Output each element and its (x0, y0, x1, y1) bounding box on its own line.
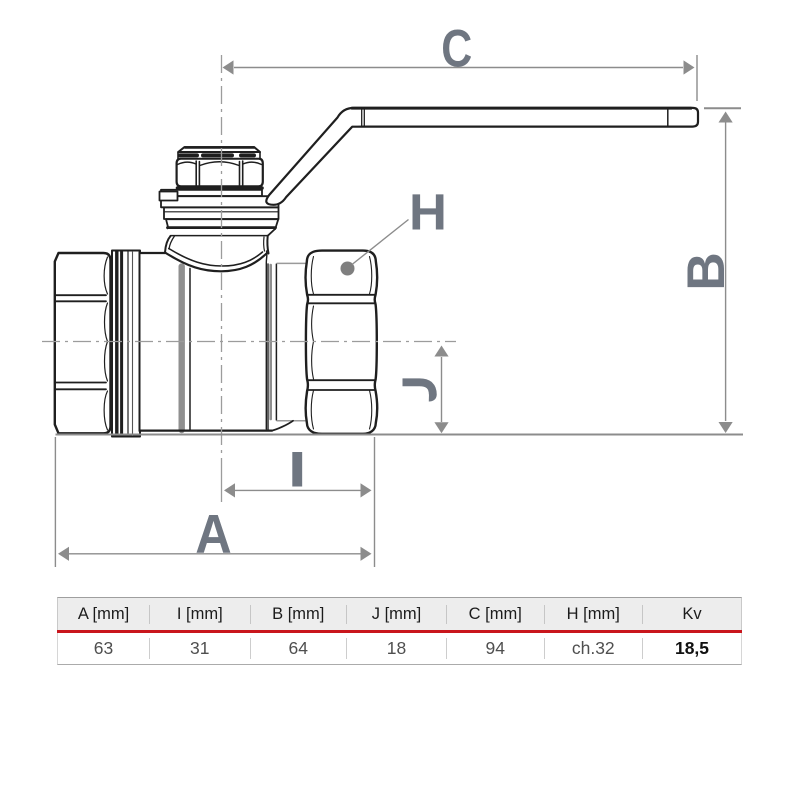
svg-text:A: A (195, 503, 232, 565)
svg-text:B: B (677, 252, 736, 291)
svg-text:H: H (409, 183, 447, 240)
svg-text:I: I (288, 442, 307, 498)
svg-text:C: C (441, 20, 472, 79)
